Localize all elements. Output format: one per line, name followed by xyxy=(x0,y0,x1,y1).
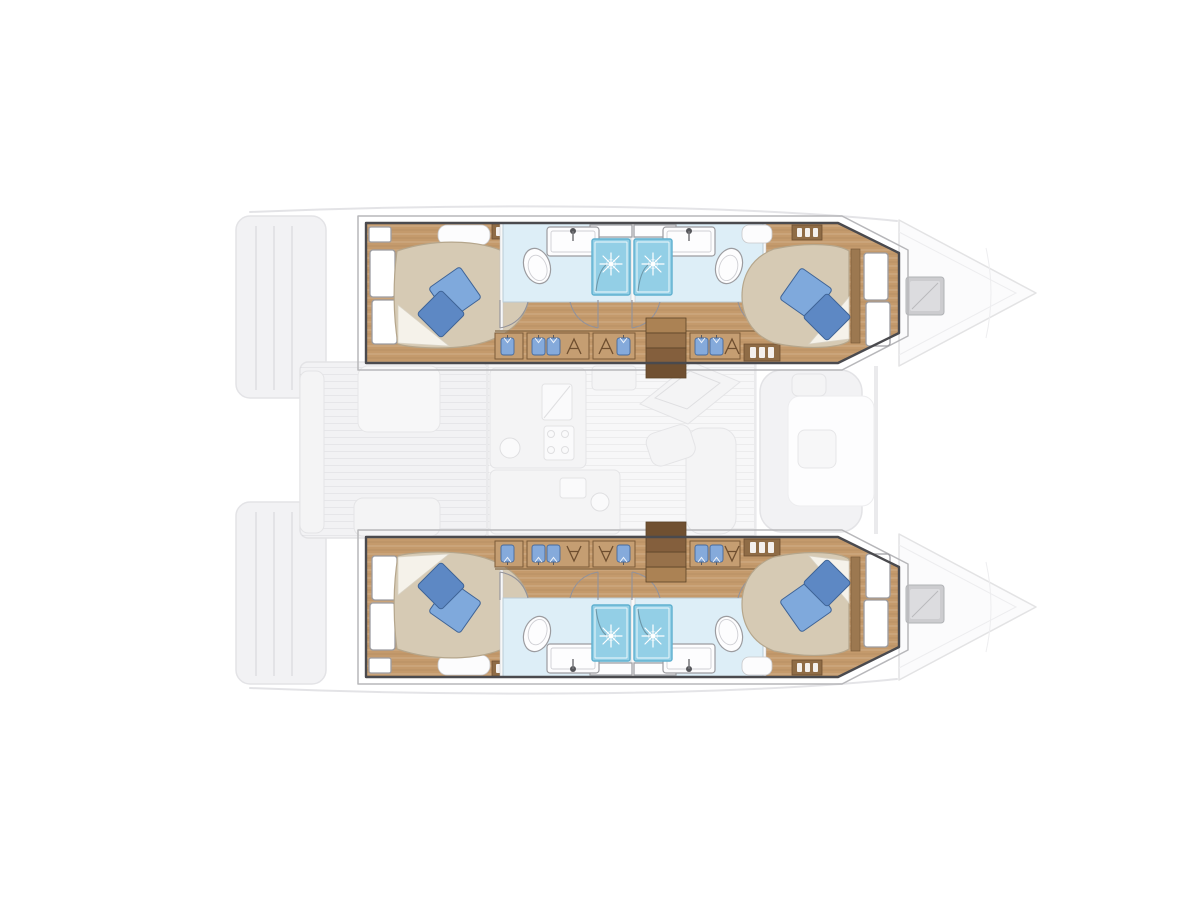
vent-grille xyxy=(792,225,822,240)
shower-cubicle-aft xyxy=(592,239,630,295)
clothes-icon xyxy=(617,335,630,355)
wardrobe-unit xyxy=(495,541,523,567)
rain-shower-head-icon xyxy=(600,625,622,647)
vent-grille xyxy=(744,344,780,361)
clothes-icon xyxy=(617,545,630,565)
wardrobe-unit xyxy=(690,541,740,567)
shower-cubicle-forward xyxy=(634,239,672,295)
galley xyxy=(490,368,586,468)
bow-port xyxy=(899,220,1036,366)
clothes-icon xyxy=(547,335,560,355)
forward-cockpit-cushion xyxy=(792,374,826,396)
starboard-hull xyxy=(358,522,908,684)
port-hull xyxy=(358,216,908,378)
forward-cockpit-table xyxy=(798,430,836,468)
wardrobe-unit xyxy=(593,541,635,567)
wardrobe-unit xyxy=(495,333,523,359)
aft-cockpit xyxy=(300,362,488,538)
clothes-icon xyxy=(710,545,723,565)
forward-cabin-dresser xyxy=(742,225,772,243)
floor-plan-canvas xyxy=(0,0,1200,900)
headboard xyxy=(851,557,860,651)
clothes-icon xyxy=(547,545,560,565)
forward-cabin-window xyxy=(864,600,888,647)
hull-sheer-port xyxy=(250,206,897,221)
clothes-icon xyxy=(532,335,545,355)
clothes-icon xyxy=(501,545,514,565)
aft-cabin-window xyxy=(372,556,397,600)
forward-cabin-window xyxy=(864,253,888,300)
catamaran-floor-plan xyxy=(0,0,1200,900)
headboard xyxy=(851,249,860,343)
aft-cabin-window xyxy=(370,250,395,297)
cockpit-table xyxy=(358,366,440,432)
wardrobe-unit xyxy=(690,333,740,359)
staircase-to-saloon xyxy=(646,318,686,378)
forward-cockpit xyxy=(760,370,874,532)
wardrobe-unit xyxy=(527,541,589,567)
clothes-icon xyxy=(695,545,708,565)
aft-cabin-window xyxy=(372,300,397,344)
clothes-icon xyxy=(501,335,514,355)
deck-hatch-port xyxy=(906,277,944,315)
wardrobe-unit xyxy=(593,333,635,359)
aft-cabin-porthole xyxy=(369,227,391,242)
forward-cabin-dresser xyxy=(742,657,772,675)
shower-cubicle-aft xyxy=(592,605,630,661)
bow-starboard xyxy=(899,534,1036,680)
clothes-icon xyxy=(532,545,545,565)
cockpit-bench xyxy=(300,371,324,533)
deck-hatch-starboard xyxy=(906,585,944,623)
aft-cabin-porthole xyxy=(369,658,391,673)
galley-sink xyxy=(500,438,520,458)
rain-shower-head-icon xyxy=(642,625,664,647)
vent-grille xyxy=(744,539,780,556)
washbasin-aft xyxy=(547,644,599,673)
clothes-icon xyxy=(695,335,708,355)
rain-shower-head-icon xyxy=(642,253,664,275)
rain-shower-head-icon xyxy=(600,253,622,275)
clothes-icon xyxy=(710,335,723,355)
staircase-to-saloon xyxy=(646,522,686,582)
washbasin-aft xyxy=(547,227,599,256)
wardrobe-unit xyxy=(527,333,589,359)
galley-aft-counter xyxy=(490,470,620,534)
vent-grille xyxy=(792,660,822,675)
shower-cubicle-forward xyxy=(634,605,672,661)
hull-sheer-starboard xyxy=(250,679,897,694)
aft-cabin-window xyxy=(370,603,395,650)
